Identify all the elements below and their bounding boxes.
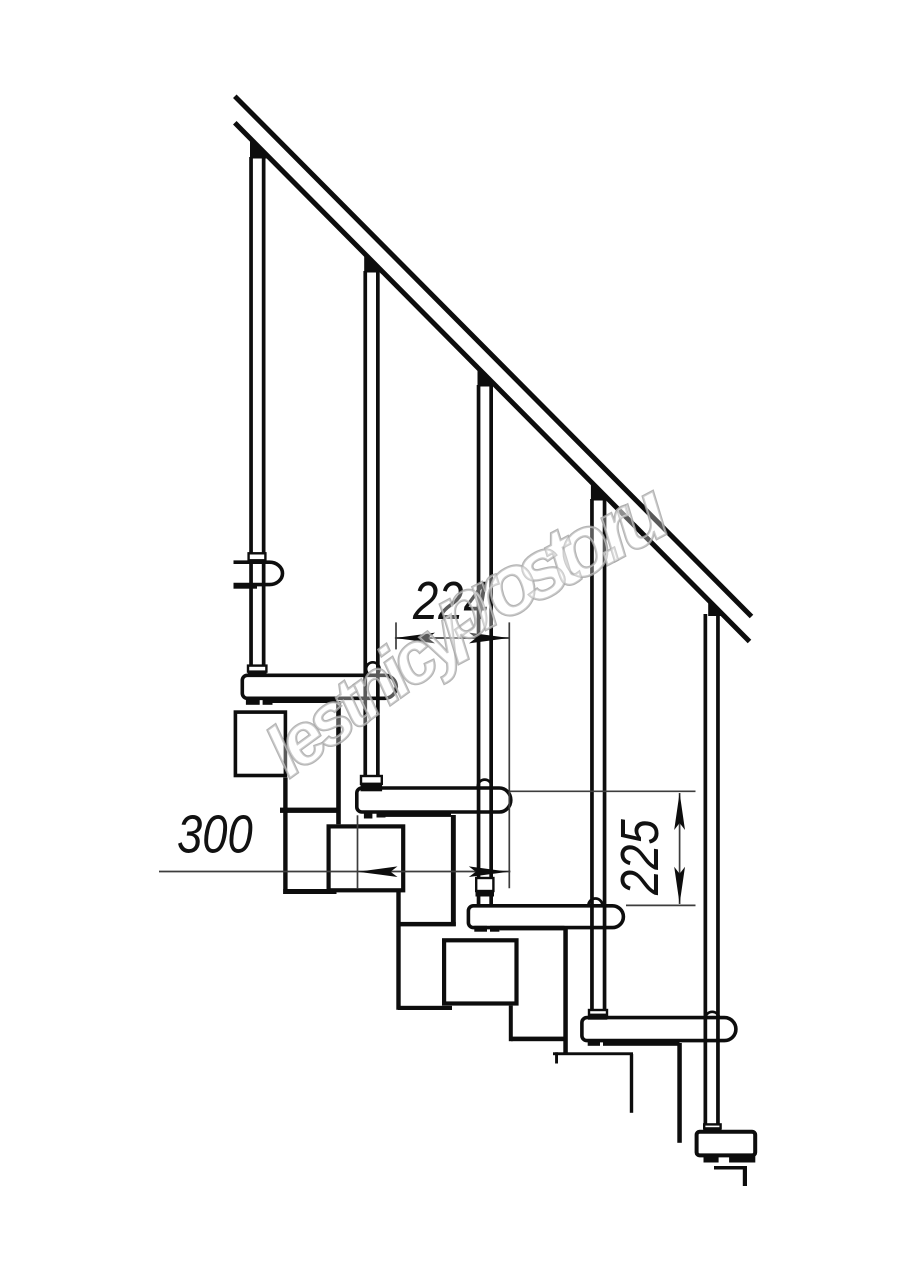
svg-text:225: 225 bbox=[609, 819, 670, 896]
svg-text:300: 300 bbox=[177, 804, 253, 865]
